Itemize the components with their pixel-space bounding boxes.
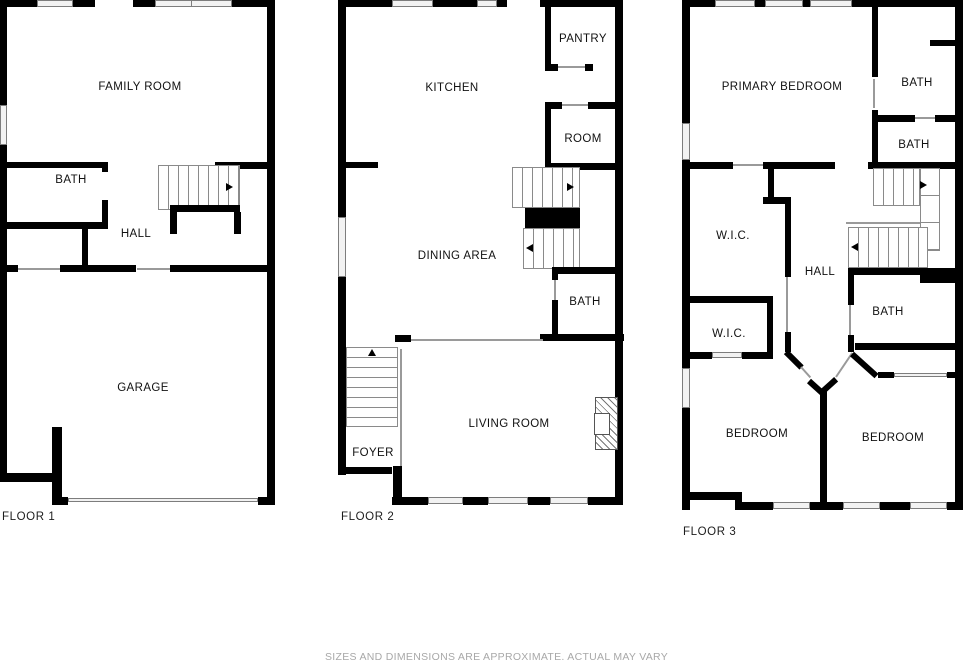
window	[682, 368, 690, 408]
window	[773, 502, 810, 509]
wall	[763, 197, 791, 204]
wall	[855, 343, 955, 350]
wall-diagonal	[850, 352, 879, 379]
staircase-lower-run	[848, 227, 928, 268]
wall	[755, 0, 765, 7]
wall	[878, 115, 915, 122]
window	[810, 0, 852, 7]
room-label-bath-mid: BATH	[898, 139, 929, 151]
wall	[742, 502, 773, 510]
window	[894, 373, 947, 377]
wall	[735, 492, 742, 510]
wall	[852, 0, 963, 7]
window	[843, 502, 880, 509]
window	[765, 0, 803, 7]
room-label-bedroom-left: BEDROOM	[726, 428, 788, 440]
wall	[690, 352, 712, 359]
room-label-bedroom-right: BEDROOM	[862, 432, 924, 444]
closet-door	[712, 352, 742, 358]
staircase-upper-run	[873, 168, 920, 206]
wall	[803, 0, 810, 7]
wall	[810, 502, 843, 510]
shelf	[920, 271, 956, 283]
door-opening	[915, 117, 935, 119]
wall-opening-line	[846, 222, 920, 224]
wall	[820, 391, 827, 502]
wall	[848, 268, 854, 305]
stair-direction-arrow	[920, 181, 927, 189]
disclaimer-text: SIZES AND DIMENSIONS ARE APPROXIMATE, AC…	[325, 651, 668, 660]
door-opening	[800, 366, 811, 378]
room-label-hall: HALL	[805, 266, 835, 278]
door-opening	[873, 79, 875, 108]
wall	[767, 303, 773, 355]
room-label-wic-lower: W.I.C.	[712, 328, 746, 340]
door-opening	[733, 164, 763, 166]
wall	[947, 372, 955, 378]
wall	[930, 40, 955, 46]
room-label-primary-bedroom: PRIMARY BEDROOM	[722, 81, 843, 93]
stair-direction-arrow	[851, 243, 858, 251]
wall	[955, 0, 963, 510]
wall	[785, 204, 791, 277]
floor-3-plan: PRIMARY BEDROOM BATH BATH W.I.C. HALL W.…	[0, 0, 964, 660]
wall	[947, 502, 963, 510]
room-label-wic-upper: W.I.C.	[716, 230, 750, 242]
wall	[872, 7, 878, 77]
wall	[878, 372, 894, 378]
window	[682, 123, 690, 160]
floor-3-label: FLOOR 3	[683, 526, 736, 538]
door-opening	[849, 305, 851, 335]
wall	[682, 0, 690, 123]
door-opening	[786, 277, 788, 332]
room-label-bath-top: BATH	[901, 77, 932, 89]
wall	[848, 335, 854, 352]
room-label-bath-lower: BATH	[872, 306, 903, 318]
wall	[935, 115, 955, 122]
wall	[880, 502, 910, 510]
window	[715, 0, 755, 7]
window	[910, 502, 947, 509]
floor-plan-canvas: FAMILY ROOM BATH HALL GARAGE FLOOR 1	[0, 0, 964, 660]
wall	[690, 296, 773, 303]
wall	[682, 408, 690, 510]
wall	[682, 160, 690, 368]
wall	[690, 162, 733, 169]
wall	[742, 352, 773, 359]
